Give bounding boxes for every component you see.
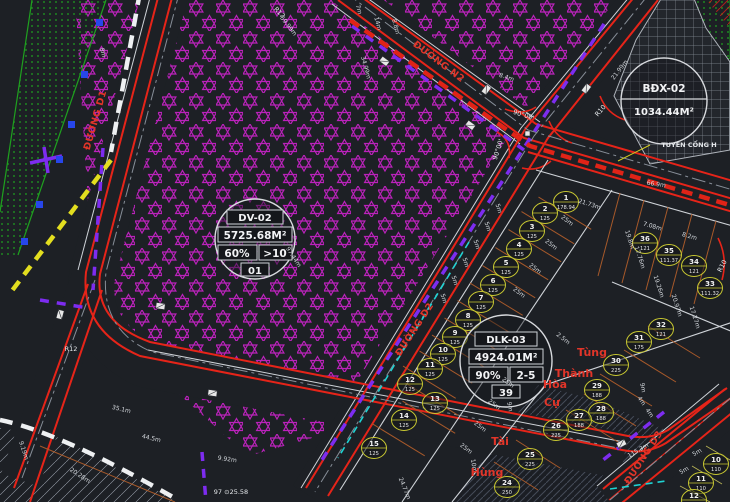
lot-marker: 7125 [469,292,494,313]
lot-number: 35 [664,247,674,255]
lot-number: 1 [564,194,569,202]
lot-area: 125 [476,305,486,311]
parcel-label-DLK-03: DLK-034924.01M²90%2-539 [460,315,552,407]
lot-area: 110 [711,467,721,473]
lot-marker: 3125 [520,221,545,242]
annotation-label: R12 [65,345,78,353]
lot-area: 175 [634,345,644,351]
lot-marker: 26225 [544,420,569,441]
lot-number: 15 [369,440,379,448]
svg-text:4924.01M²: 4924.01M² [475,352,538,364]
lot-marker: 35111.37 [657,245,682,266]
svg-text:90%: 90% [475,370,501,382]
svg-text:2-5: 2-5 [517,370,536,382]
lot-area: 225 [551,433,561,439]
lot-area: 121 [689,269,699,275]
lot-number: 10 [438,346,448,354]
owner-name-label: Hùng [471,466,504,479]
lot-marker: 29188 [585,380,610,401]
lot-number: 10 [711,456,721,464]
lot-area: 125 [463,323,473,329]
lot-area: 125 [450,340,460,346]
lot-area: 178.94 [557,205,576,211]
lot-number: 6 [491,277,496,285]
lot-number: 11 [696,475,706,483]
lot-number: 8 [466,312,471,320]
lot-area: 250 [502,490,512,496]
lot-area: 125 [540,216,550,222]
parcel-label-BĐX-02: BĐX-021034.44M² [621,58,707,144]
lot-area: 125 [527,234,537,240]
lot-area: 125 [514,252,524,258]
lot-marker: 10110 [704,454,729,475]
owner-name-label: Cự [544,396,561,409]
lot-area: 111.37 [660,258,678,264]
lot-number: 7 [479,294,484,302]
lot-number: 31 [634,334,644,342]
lot-number: 4 [517,241,522,249]
lot-number: 30 [611,357,621,365]
lot-area: 188 [574,423,584,429]
lot-marker: 27188 [567,410,592,431]
svg-text:39: 39 [499,388,513,399]
lot-number: 33 [705,280,715,288]
lot-area: 125 [430,406,440,412]
svg-text:>10: >10 [263,248,286,260]
svg-text:1034.44M²: 1034.44M² [634,107,694,118]
lot-number: 25 [525,451,535,459]
cad-drawing: 1178.94212531254125512561257125812591251… [0,0,730,502]
lot-area: 121 [656,332,666,338]
lot-area: 125 [369,451,379,457]
owner-name-label: Hòa [543,378,567,391]
lot-area: 125 [501,270,511,276]
annotation-label: 97 ⊙25.58 [214,488,248,496]
lot-number: 2 [543,205,548,213]
lot-marker: 2125 [533,203,558,224]
lot-number: 32 [656,321,666,329]
lot-number: 29 [592,382,602,390]
lot-number: 28 [596,405,606,413]
lot-marker: 4125 [507,239,532,260]
lot-number: 14 [399,412,409,420]
owner-name-label: Tài [491,435,509,448]
lot-area: 111.32 [701,291,719,297]
lot-number: 11 [425,361,435,369]
lot-area: 125 [405,387,415,393]
svg-text:BĐX-02: BĐX-02 [642,83,685,95]
svg-text:5725.68M²: 5725.68M² [224,230,287,242]
lot-number: 36 [640,235,650,243]
svg-text:DLK-03: DLK-03 [486,335,526,346]
lot-number: 9 [453,329,458,337]
lot-area: 225 [525,462,535,468]
lot-area: 188 [596,416,606,422]
lot-marker: 31175 [627,332,652,353]
lot-area: 125 [425,372,435,378]
svg-text:DV-02: DV-02 [238,213,271,224]
lot-number: 12 [689,492,699,500]
lot-area: 188 [592,393,602,399]
lot-marker: 11125 [418,359,443,380]
lot-number: 5 [504,259,509,267]
lot-marker: 30225 [604,355,629,376]
svg-text:60%: 60% [224,248,250,260]
lot-marker: 12125 [398,374,423,395]
lot-marker: 15125 [362,438,387,459]
lot-number: 3 [530,223,535,231]
annotation-label: TUYẾN CỐNG H [661,139,716,149]
lot-area: 125 [488,288,498,294]
lot-area: 225 [611,368,621,374]
lot-marker: 33111.32 [698,278,723,299]
lot-marker: 25225 [518,449,543,470]
lot-number: 27 [574,412,584,420]
owner-name-label: Tùng [577,346,607,359]
lot-marker: 32121 [649,319,674,340]
lot-marker: 14125 [392,410,417,431]
lot-marker: 5125 [494,257,519,278]
lot-number: 13 [430,395,440,403]
lot-number: 12 [405,376,415,384]
lot-marker: 13125 [423,393,448,414]
lot-marker: 28188 [589,403,614,424]
lot-marker: 34121 [682,256,707,277]
lot-number: 26 [551,422,561,430]
lot-marker: 24250 [495,477,520,498]
lot-number: 34 [689,258,699,266]
lot-number: 24 [502,479,512,487]
parcel-label-DV-02: DV-025725.68M²60%>1001 [215,199,295,279]
lot-area: 125 [399,423,409,429]
svg-text:01: 01 [248,266,262,277]
cad-canvas[interactable]: 1178.94212531254125512561257125812591251… [0,0,730,502]
